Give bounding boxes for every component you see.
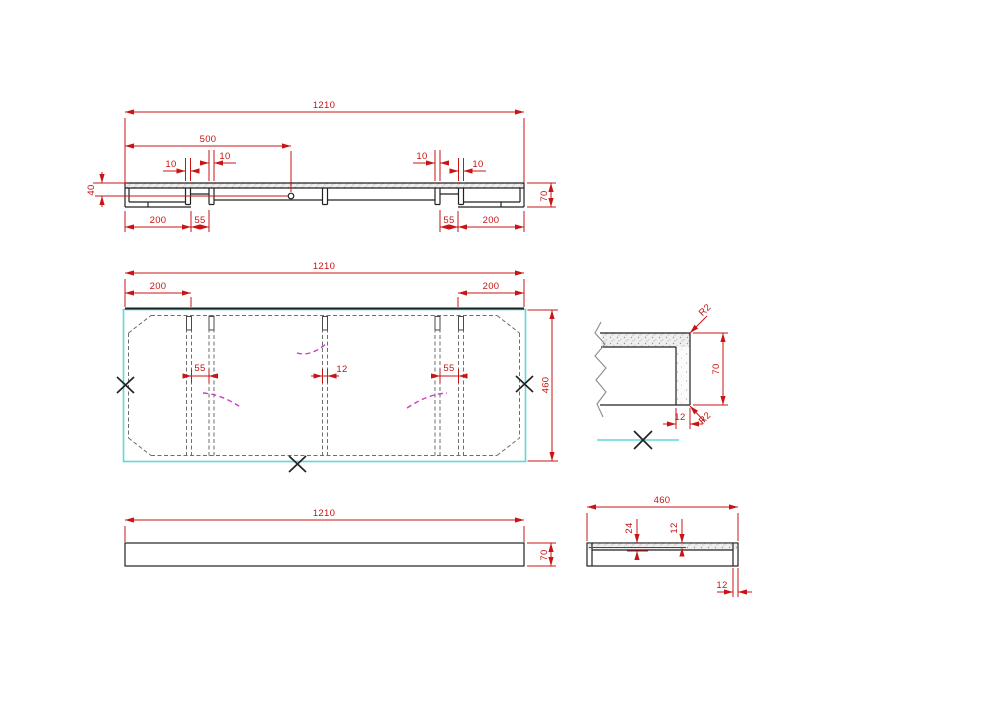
plan-hidden-lines: [129, 316, 520, 456]
dim-section-gap-right: 55: [443, 215, 454, 226]
dim-section-slot-a: 10: [165, 159, 176, 170]
section-dimensions: 1210 500 40 10 10 10 10: [86, 100, 556, 232]
dim-detail-thickness: 12: [674, 412, 685, 423]
dim-section-slot-c: 10: [416, 151, 427, 162]
dim-side-thickness: 12: [716, 580, 727, 591]
dim-section-hole-y: 40: [86, 184, 97, 195]
dim-plan-end-right: 200: [483, 281, 500, 292]
drawing-canvas: 1210 500 40 10 10 10 10: [0, 0, 1000, 707]
section-hole: [288, 193, 294, 199]
front-dimensions: 1210 70: [125, 508, 556, 566]
dim-plan-gap-left: 55: [194, 363, 205, 374]
section-view: 1210 500 40 10 10 10 10: [86, 100, 556, 232]
dim-section-slot-d: 10: [472, 159, 483, 170]
dim-section-end-left: 200: [150, 215, 167, 226]
plan-x-markers: [117, 376, 533, 472]
section-flange-hatch: [125, 183, 524, 188]
dim-detail-height: 70: [711, 363, 722, 374]
dim-plan-width: 460: [541, 377, 552, 394]
plan-dimensions: 1210 200 200 55 12 55 460: [125, 261, 558, 461]
dim-section-slot-b: 10: [219, 151, 230, 162]
detail-flange-hatch: [601, 333, 690, 347]
dim-section-end-right: 200: [483, 215, 500, 226]
corner-detail-view: R2 R2 70 12: [595, 302, 728, 449]
dim-plan-gap-right: 55: [443, 363, 454, 374]
side-section-view: 460 24 12 12: [587, 495, 752, 597]
dim-plan-overall: 1210: [313, 261, 335, 272]
cad-drawing: 1210 500 40 10 10 10 10: [0, 0, 1000, 707]
detail-wall-hatch: [676, 347, 690, 405]
dim-front-height: 70: [539, 549, 550, 560]
dim-front-length: 1210: [313, 508, 335, 519]
detail-dimensions: R2 R2 70 12: [663, 302, 728, 429]
dim-plan-rib: 12: [336, 364, 347, 375]
plan-highlight-outline: [124, 310, 526, 462]
plan-slot-marks: [187, 317, 464, 331]
plan-view: 1210 200 200 55 12 55 460: [117, 261, 558, 472]
front-view: 1210 70: [125, 508, 556, 566]
dim-detail-radius-top: R2: [697, 302, 714, 319]
dim-side-inset-a: 24: [624, 522, 635, 533]
dim-section-overall: 1210: [313, 100, 335, 111]
dim-side-width: 460: [654, 495, 671, 506]
dim-plan-end-left: 200: [150, 281, 167, 292]
side-flange-hatch: [588, 544, 737, 551]
front-outline: [125, 543, 524, 566]
dim-section-hole-x: 500: [200, 134, 217, 145]
dim-section-height: 70: [539, 190, 550, 201]
dim-side-inset-b: 12: [669, 522, 680, 533]
dim-section-gap-left: 55: [194, 215, 205, 226]
